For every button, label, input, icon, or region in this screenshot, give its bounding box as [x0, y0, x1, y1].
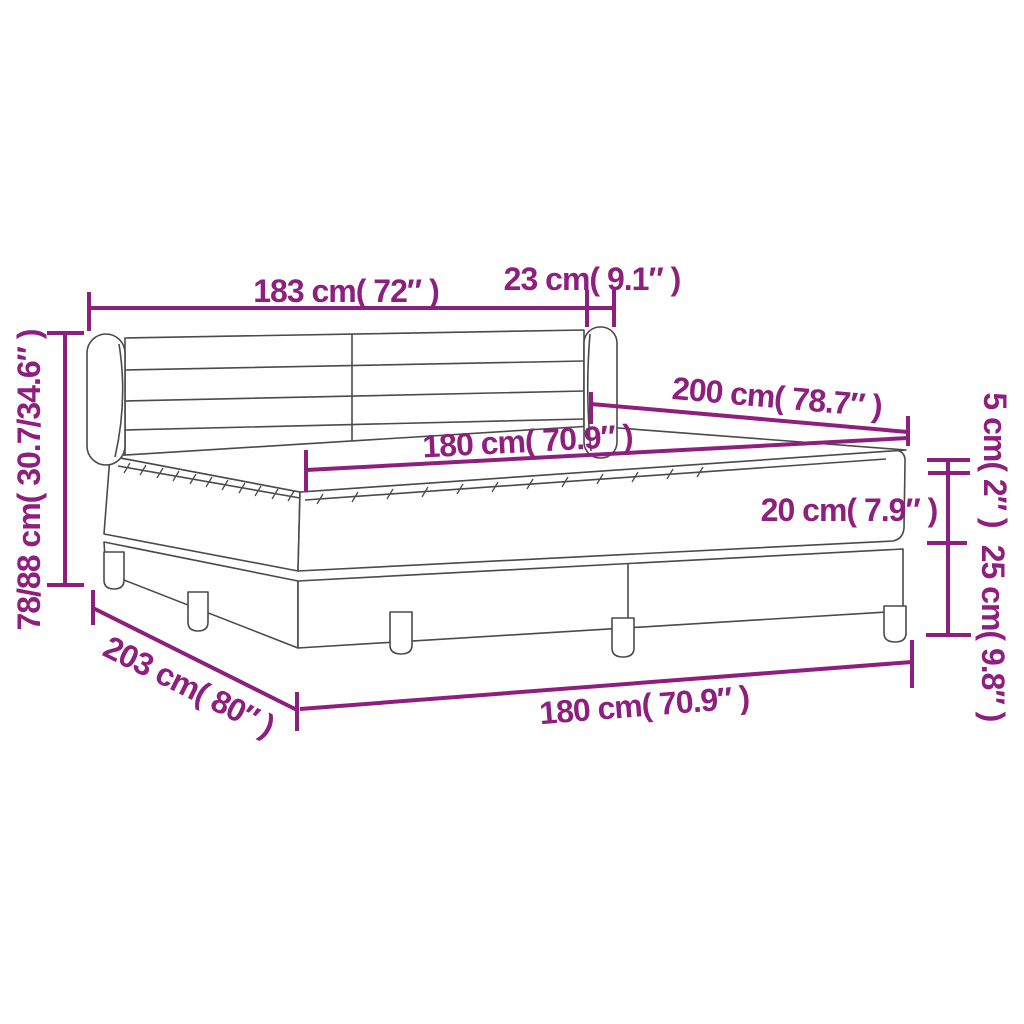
bed-dimension-diagram: 183 cm( 72″ ) 23 cm( 9.1″ ) 78/88 cm( 30… [0, 0, 1024, 1024]
bed-leg [612, 618, 634, 657]
diagram-canvas: 183 cm( 72″ ) 23 cm( 9.1″ ) 78/88 cm( 30… [0, 0, 1024, 1024]
dim-label-headboard-side: 23 cm( 9.1″ ) [504, 261, 681, 297]
bed-leg [104, 552, 124, 589]
dim-label-topper-thickness: 5 cm( 2″ ) [977, 392, 1013, 528]
bed-leg [884, 606, 906, 642]
dim-height: 78/88 cm( 30.7/34.6″ ) [11, 329, 84, 630]
headboard-left-bolster [87, 334, 125, 465]
bed-leg [188, 592, 208, 631]
dim-base-width: 180 cm( 70.9″ ) [300, 640, 912, 731]
dim-label-mattress-thickness: 20 cm( 7.9″ ) [761, 492, 938, 528]
dim-label-headboard-width: 183 cm( 72″ ) [253, 273, 439, 309]
bed-leg [390, 612, 412, 654]
dim-label-height: 78/88 cm( 30.7/34.6″ ) [11, 329, 47, 630]
dim-headboard-width: 183 cm( 72″ ) 23 cm( 9.1″ ) [89, 261, 681, 331]
dim-label-length: 200 cm( 78.7″ ) [671, 370, 884, 424]
dim-label-base-height: 25 cm( 9.8″ ) [975, 545, 1011, 722]
